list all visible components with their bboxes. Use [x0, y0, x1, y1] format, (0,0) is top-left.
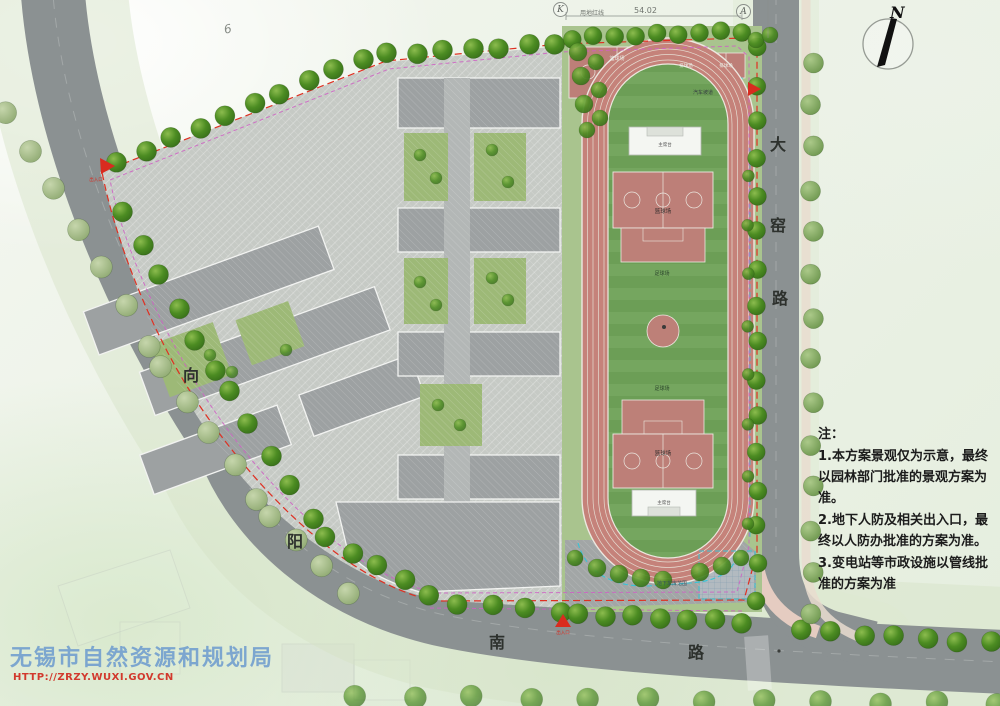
road-label-yang: 阳	[287, 528, 303, 552]
watermark-agency: 无锡市自然资源和规划局	[10, 640, 274, 672]
entrance-west-label: 出入口	[89, 176, 103, 183]
car-ramp-label: 汽车坡道	[693, 89, 713, 96]
soccer-label-2: 足球场	[654, 385, 669, 392]
garage-label: 地下车库范围	[657, 580, 687, 587]
volleyball-2-label: 排球场	[719, 62, 733, 69]
north-arrow	[863, 18, 913, 69]
stand-bottom-label: 主席台	[657, 499, 671, 506]
basketball-top-label: 篮球场	[655, 207, 672, 215]
stand-top-label: 主席台	[658, 141, 672, 148]
road-label-xiang: 向	[183, 362, 199, 386]
road-label-nan: 南	[489, 629, 505, 653]
sports-zone	[562, 26, 762, 612]
note-3: 3.变电站等市政设施以管线批准的方案为准	[818, 553, 998, 595]
note-1: 1.本方案景观仅为示意，最终以园林部门批准的景观方案为准。	[818, 446, 998, 509]
entrance-south-label: 出入口	[556, 629, 570, 636]
ref-circle-k: K	[553, 2, 568, 17]
road-label-lu-south: 路	[688, 639, 704, 663]
north-label: N	[890, 3, 905, 22]
volleyball-1-label: 排球场	[679, 62, 693, 69]
basketball-bottom-label: 篮球场	[655, 449, 672, 457]
watermark-url: HTTP://ZRZY.WUXI.GOV.CN	[13, 672, 174, 683]
notes-heading: 注：	[818, 424, 998, 445]
ref-circle-a: A	[736, 4, 751, 19]
road-label-lu-east: 路	[772, 285, 788, 309]
red-line-note: 用地红线	[580, 8, 604, 17]
basketball-outer-label: 篮球场	[609, 55, 624, 62]
dimension-value: 54.02	[634, 6, 657, 15]
site-plan-drawing: 主席台 篮球场 足球场 足球场 篮球场 主席台 篮球场 排球场 排球场 汽车坡道…	[0, 0, 1000, 706]
notes-block: 注： 1.本方案景观仅为示意，最终以园林部门批准的景观方案为准。 2.地下人防及…	[818, 424, 998, 596]
soccer-label-1: 足球场	[654, 270, 669, 277]
road-label-da: 大	[770, 131, 786, 155]
note-2: 2.地下人防及相关出入口，最终以人防办批准的方案为准。	[818, 510, 998, 552]
road-label-yao: 窑	[770, 212, 786, 236]
site-plan-canvas: 主席台 篮球场 足球场 足球场 篮球场 主席台 篮球场 排球场 排球场 汽车坡道…	[0, 0, 1000, 706]
